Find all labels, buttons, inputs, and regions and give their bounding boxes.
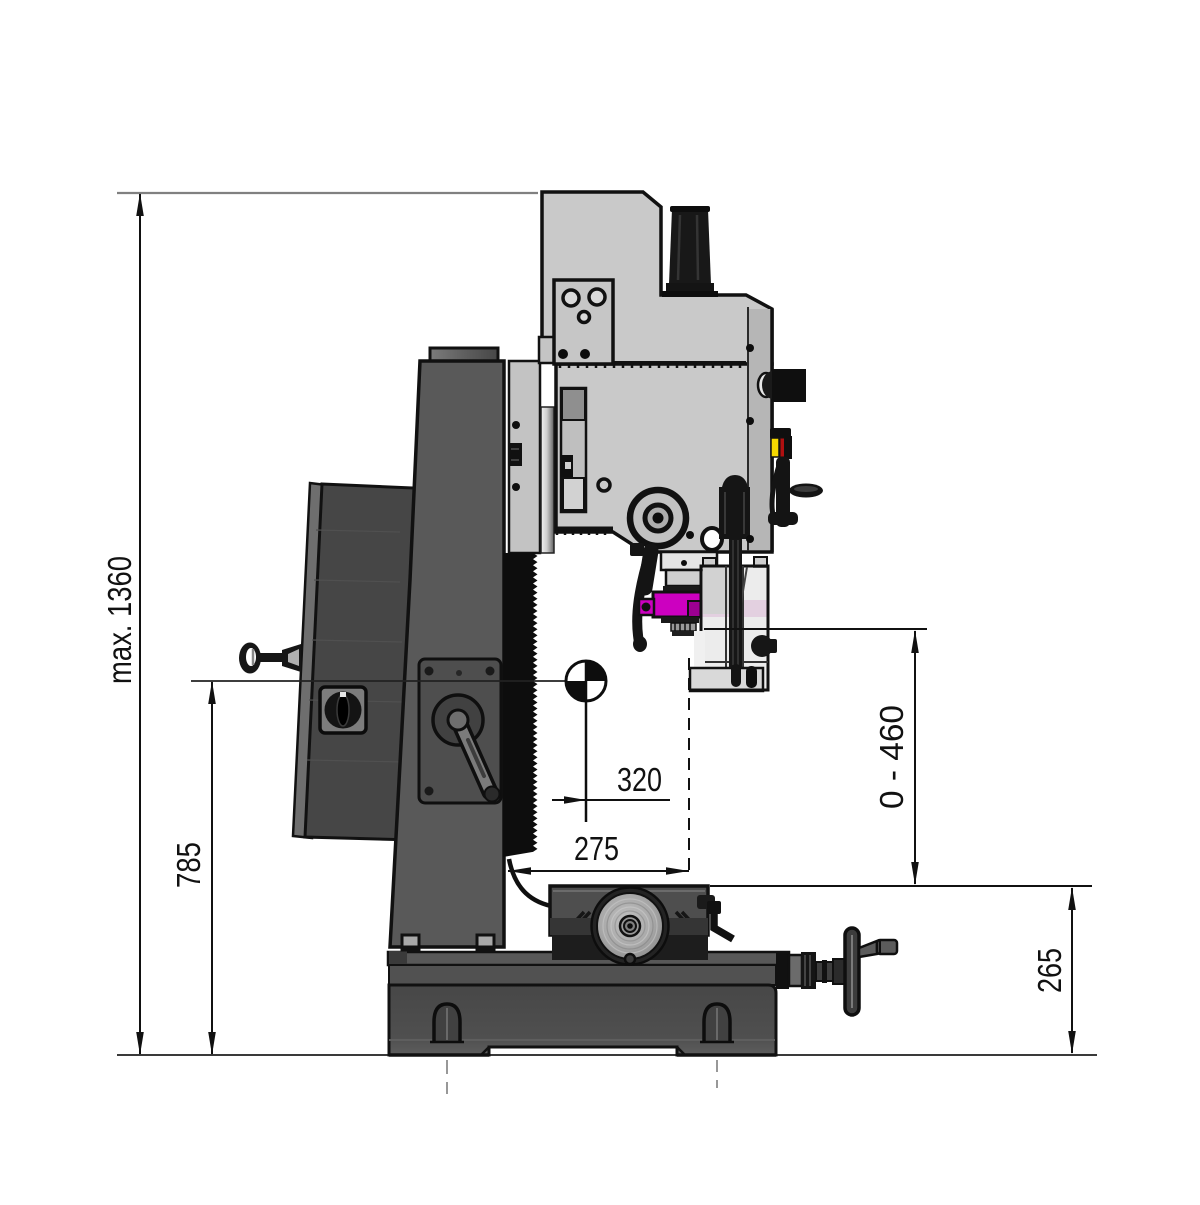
svg-text:0 - 460: 0 - 460 [873,705,910,809]
svg-text:785: 785 [170,842,207,888]
svg-text:275: 275 [574,830,619,867]
svg-text:max. 1360: max. 1360 [101,556,138,684]
svg-text:320: 320 [617,761,662,798]
svg-text:265: 265 [1031,948,1068,993]
